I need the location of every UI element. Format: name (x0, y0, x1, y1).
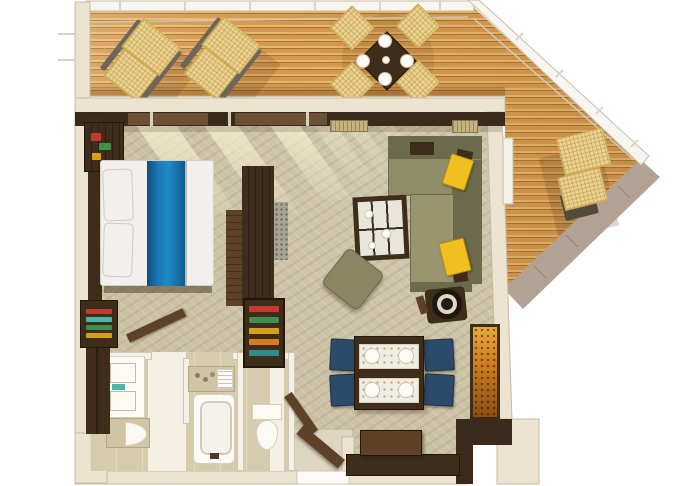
closet (86, 348, 110, 434)
tv-cabinet (360, 430, 422, 456)
outdoor-plate (400, 54, 414, 68)
minibar-item (249, 350, 279, 356)
se-corner-wall (497, 419, 539, 484)
bath-counter (188, 366, 235, 392)
sofa-armrest-wood (410, 142, 434, 155)
place-setting (364, 382, 380, 398)
barrel-chair (422, 284, 470, 326)
place-setting (364, 348, 380, 364)
bed-pillow (102, 222, 134, 277)
rattan-vent-panel (330, 120, 368, 132)
basin (110, 391, 136, 411)
book (86, 325, 112, 330)
outdoor-dining-set (326, 4, 450, 116)
bed-foot-shadow (104, 286, 212, 293)
bedside-bookshelf (80, 300, 118, 348)
toiletry-bottle (203, 377, 208, 382)
dining-chair (423, 338, 455, 372)
wardrobe-body (242, 166, 274, 306)
closet-door-line (96, 348, 98, 434)
duvet-fold (185, 161, 187, 286)
dish (368, 241, 376, 249)
minibar-item (249, 339, 279, 345)
bed-runner (147, 161, 185, 286)
toiletry-bottle (195, 373, 200, 378)
outdoor-plate (356, 54, 370, 68)
dish (364, 209, 373, 218)
minibar-item (249, 306, 279, 312)
counter (106, 418, 150, 448)
minibar-item (249, 317, 279, 323)
minibar-shelf (243, 298, 285, 368)
flower (92, 153, 101, 160)
outdoor-plate (378, 34, 392, 48)
dining-chair (423, 373, 455, 407)
towel-rack (217, 369, 233, 389)
outdoor-plate (378, 72, 392, 86)
minibar-item (249, 328, 279, 334)
lounger-backrest (556, 128, 612, 176)
tub-faucet (210, 453, 219, 459)
flower (91, 133, 101, 141)
bed-pillow (102, 168, 134, 221)
coffee-table (352, 195, 409, 262)
se-step-wall-h (456, 419, 512, 445)
toiletry-tray (112, 384, 125, 390)
book (86, 317, 112, 322)
book (86, 309, 112, 314)
toilet-tank (252, 404, 282, 420)
outdoor-chair (395, 3, 440, 48)
table-centerpiece (382, 56, 390, 64)
place-setting (398, 348, 414, 364)
half-round-basin (125, 422, 147, 446)
entry-doorway (297, 471, 349, 484)
bed (100, 160, 214, 286)
art-panel (470, 324, 500, 420)
basin (110, 363, 136, 383)
book (86, 333, 112, 338)
dish (381, 228, 392, 239)
wc-partition (237, 352, 244, 471)
tub-basin (200, 401, 232, 455)
rattan-vent-panel (452, 120, 478, 133)
flower (99, 143, 111, 150)
tile-lane (148, 352, 186, 471)
bathtub (193, 394, 235, 464)
floorplan-canvas (0, 0, 680, 486)
place-setting (398, 382, 414, 398)
marble-counter (274, 202, 288, 260)
art-texture (473, 327, 497, 417)
bathroom-block (90, 352, 295, 471)
chair-ring-center (441, 298, 453, 310)
outdoor-chair (329, 5, 374, 50)
toiletry-bottle (210, 372, 215, 377)
dining-table (354, 336, 424, 410)
tv-console-base (346, 454, 460, 476)
